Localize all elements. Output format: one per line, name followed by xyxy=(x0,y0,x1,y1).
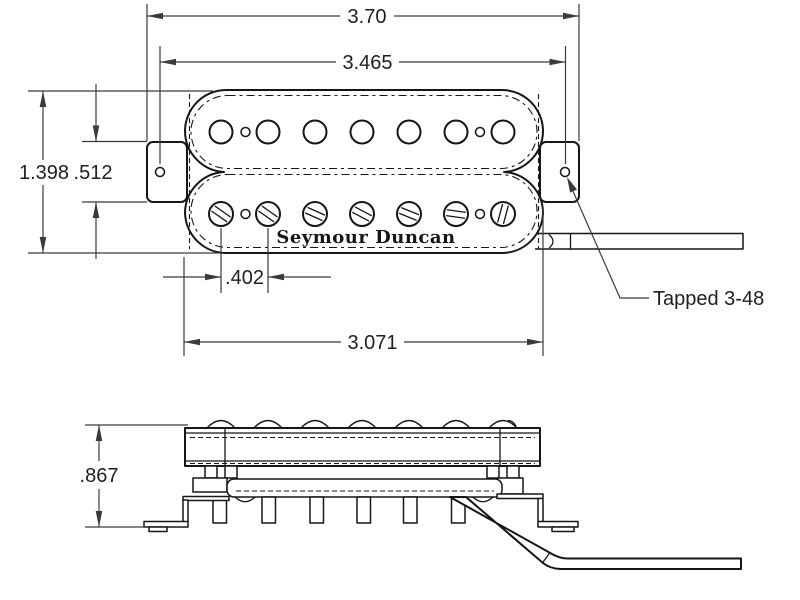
dim-text-body-width: 3.071 xyxy=(347,332,397,354)
left-mounting-ear xyxy=(147,142,187,202)
screw-pole-6 xyxy=(444,202,468,226)
screw-pole-4 xyxy=(350,202,374,226)
screw-pole-5 xyxy=(397,202,421,226)
dim-tab-height: .512 xyxy=(74,84,147,259)
screw-pole-7 xyxy=(491,202,515,226)
screw-pole-1 xyxy=(209,202,233,226)
left-mounting-hole xyxy=(156,168,165,177)
dim-text-hole-spacing: 3.465 xyxy=(342,52,392,74)
screw-pole-2 xyxy=(256,202,280,226)
left-frame-step xyxy=(193,478,227,492)
arrowhead xyxy=(563,13,579,20)
screw-row-trim-hole-2 xyxy=(476,210,485,219)
side-view xyxy=(144,421,741,570)
bump-4 xyxy=(348,421,376,429)
bump-5 xyxy=(395,421,423,429)
arrowhead xyxy=(205,274,221,281)
slug-pole-5 xyxy=(398,121,421,144)
arrowhead xyxy=(268,274,284,281)
dim-text-overall-width: 3.70 xyxy=(348,6,387,28)
bump-3 xyxy=(301,421,329,429)
arrowhead xyxy=(93,202,100,218)
arrowhead xyxy=(184,339,200,346)
arrowhead xyxy=(527,339,543,346)
right-bracket-flange xyxy=(497,494,543,499)
screw-row-trim-hole-1 xyxy=(241,210,250,219)
stud-1 xyxy=(205,466,217,478)
slug-pole-2 xyxy=(257,121,280,144)
slug-pole-1 xyxy=(210,121,233,144)
left-bracket-vertical xyxy=(183,500,188,522)
humbucker-dimension-drawing: Seymour Duncan xyxy=(0,0,800,600)
screw-pole-3 xyxy=(303,202,327,226)
bump-6 xyxy=(442,421,470,429)
leg-4 xyxy=(357,497,371,523)
left-bracket-foot xyxy=(144,522,188,528)
side-body-slab xyxy=(185,428,540,466)
arrowhead xyxy=(40,91,47,107)
arrowhead xyxy=(147,13,163,20)
bump-2 xyxy=(254,421,282,429)
stud-4 xyxy=(507,466,519,478)
slug-pole-4 xyxy=(351,121,374,144)
right-mounting-hole xyxy=(561,168,570,177)
arrowhead xyxy=(93,126,100,142)
slug-pole-3 xyxy=(304,121,327,144)
right-mounting-bracket xyxy=(497,494,578,532)
stud-3 xyxy=(487,466,499,478)
bump-1 xyxy=(207,421,235,429)
technical-drawing-page: Seymour Duncan xyxy=(0,0,800,600)
arrowhead xyxy=(160,59,176,66)
dim-text-pole-spacing: .402 xyxy=(225,267,264,289)
top-view: Seymour Duncan xyxy=(147,90,743,253)
screw-head-bumps xyxy=(207,421,517,429)
lead-wire-side-view xyxy=(450,497,741,569)
left-bracket-nub xyxy=(149,527,167,532)
callout-tapped-text: Tapped 3-48 xyxy=(653,288,764,310)
arrowhead xyxy=(96,511,103,527)
slug-pole-6 xyxy=(445,121,468,144)
arrowhead xyxy=(40,237,47,253)
dim-text-side-height: .867 xyxy=(80,465,119,487)
stud-2 xyxy=(225,466,237,478)
right-bracket-vertical xyxy=(538,499,543,523)
right-bracket-nub xyxy=(552,527,574,532)
dim-text-overall-height: 1.398 xyxy=(19,162,69,184)
lead-wire-top-view xyxy=(535,234,743,250)
slug-pole-7 xyxy=(492,121,515,144)
dim-side-height: .867 xyxy=(80,425,188,527)
slug-row-trim-hole-1 xyxy=(241,128,250,137)
leg-3 xyxy=(310,497,324,523)
slug-row-trim-hole-2 xyxy=(476,128,485,137)
dim-text-tab-height: .512 xyxy=(74,162,113,184)
brand-logo: Seymour Duncan xyxy=(276,227,455,248)
right-bracket-foot xyxy=(538,522,578,528)
arrowhead xyxy=(550,59,566,66)
arrowhead xyxy=(96,425,103,441)
leg-2 xyxy=(262,497,276,523)
leg-5 xyxy=(404,497,418,523)
left-bracket-flange xyxy=(183,497,229,501)
baseplate-bar xyxy=(227,479,502,497)
